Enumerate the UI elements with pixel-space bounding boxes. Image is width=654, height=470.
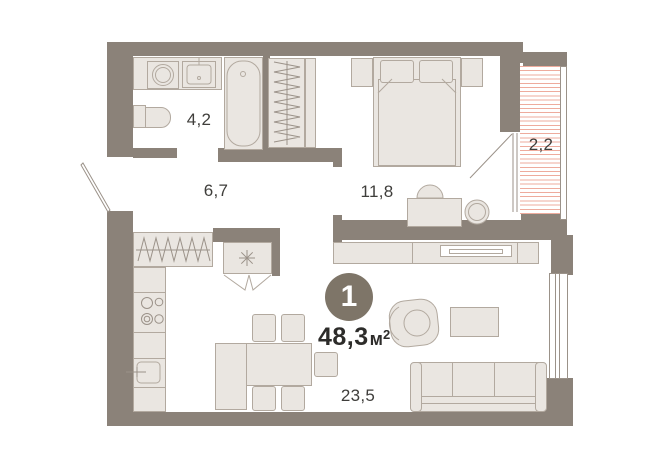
hall-wardrobe xyxy=(268,58,305,148)
wall-left-lower xyxy=(107,211,133,426)
sofa-seat-line-2 xyxy=(421,403,536,404)
kitchen-stove xyxy=(133,292,166,333)
total-area-unit: м xyxy=(370,329,383,349)
coffee-table xyxy=(450,307,499,337)
dining-table xyxy=(246,343,312,386)
tv-console-divider-1 xyxy=(412,242,413,264)
total-area-sup: 2 xyxy=(383,327,390,342)
kitchen-sink-cabinet xyxy=(133,358,166,388)
wall-bottom xyxy=(107,412,573,426)
wall-bathroom-bottom-left xyxy=(133,148,177,158)
wall-kitchen-nook-right xyxy=(272,242,280,276)
sofa-armrest-left xyxy=(410,362,422,412)
sofa-cushion-divider-2 xyxy=(494,363,495,396)
floorplan-canvas: 4,2 6,7 11,8 2,2 23,5 1 48,3м2 xyxy=(0,0,654,470)
living-room-window xyxy=(549,273,568,379)
wall-bathroom-bottom-right xyxy=(218,148,342,162)
bathtub xyxy=(224,57,263,150)
balcony-door-frame xyxy=(513,133,517,212)
rooms-count-badge: 1 xyxy=(325,273,373,321)
kitchen-counter-2 xyxy=(133,332,166,359)
total-area-label: 48,3м2 xyxy=(318,323,390,352)
hallway-area-label: 6,7 xyxy=(204,181,229,201)
wall-kitchen-nook-top xyxy=(213,228,280,242)
rooms-count-value: 1 xyxy=(341,282,358,312)
tv-screen xyxy=(449,249,503,254)
living-kitchen-area-label: 23,5 xyxy=(341,386,375,406)
wall-bathroom-left xyxy=(107,42,133,157)
dining-bench xyxy=(215,343,247,410)
wall-top xyxy=(107,42,523,56)
dining-chair-4 xyxy=(281,386,305,411)
sofa-seat-line-1 xyxy=(421,396,536,397)
armchair xyxy=(388,298,441,349)
desk-chair xyxy=(417,185,443,198)
wall-right-upper xyxy=(551,235,573,275)
bedroom-desk xyxy=(407,198,462,227)
washing-machine xyxy=(147,61,179,89)
balcony-area-label: 2,2 xyxy=(529,135,554,155)
nightstand-left xyxy=(351,58,373,87)
fridge xyxy=(223,242,272,274)
wall-bedroom-balcony xyxy=(500,42,520,132)
dining-chair-1 xyxy=(252,314,276,342)
bathroom-sink xyxy=(182,61,216,88)
fridge-door-swing xyxy=(224,275,271,290)
bathroom-area-label: 4,2 xyxy=(187,110,212,130)
kitchen-wardrobe xyxy=(133,232,213,267)
wall-bedroom-left-upper-tab xyxy=(333,148,342,167)
dining-chair-3 xyxy=(252,386,276,411)
sofa xyxy=(410,362,547,412)
balcony-glazing xyxy=(560,66,567,220)
kitchen-counter-1 xyxy=(133,267,166,293)
dining-chair-2 xyxy=(281,314,305,342)
bedroom-area-label: 11,8 xyxy=(360,182,393,202)
tv-console-divider-2 xyxy=(517,242,518,264)
bed-mattress xyxy=(378,79,456,166)
entrance-door-leaf xyxy=(81,163,110,212)
sofa-cushion-divider-1 xyxy=(452,363,453,396)
total-area-value: 48,3 xyxy=(318,323,369,351)
toilet-bowl xyxy=(145,107,171,128)
nightstand-right xyxy=(461,58,483,87)
bed-pillow-left xyxy=(380,60,414,83)
wall-balcony-top xyxy=(523,52,567,66)
balcony-door-leaf xyxy=(470,134,512,178)
bed-pillow-right xyxy=(419,60,453,83)
hall-wardrobe-panel xyxy=(305,58,316,148)
dining-chair-5 xyxy=(314,352,338,377)
kitchen-counter-3 xyxy=(133,387,166,412)
sofa-armrest-right xyxy=(535,362,547,412)
